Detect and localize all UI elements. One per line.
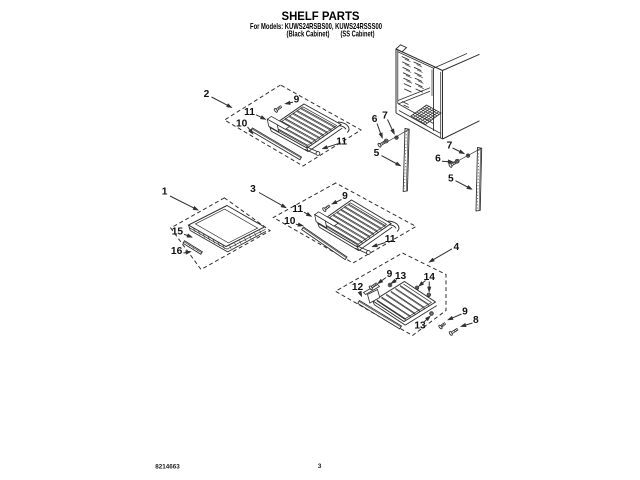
svg-text:(Black Cabinet): (Black Cabinet) — [287, 29, 330, 39]
svg-text:9: 9 — [462, 306, 468, 317]
svg-text:1: 1 — [162, 187, 168, 198]
svg-text:3: 3 — [250, 184, 256, 195]
svg-text:14: 14 — [424, 272, 436, 283]
svg-text:8214663: 8214663 — [155, 464, 180, 471]
svg-text:3: 3 — [318, 463, 322, 470]
svg-text:6: 6 — [435, 153, 441, 164]
svg-text:4: 4 — [453, 242, 459, 253]
svg-text:7: 7 — [447, 140, 453, 151]
svg-text:5: 5 — [374, 148, 380, 159]
svg-text:9: 9 — [342, 191, 348, 202]
svg-text:15: 15 — [172, 227, 184, 238]
svg-text:11: 11 — [244, 107, 255, 118]
svg-text:10: 10 — [236, 119, 248, 130]
svg-text:12: 12 — [352, 282, 364, 293]
svg-text:11: 11 — [292, 204, 303, 215]
svg-text:11: 11 — [385, 234, 396, 245]
svg-text:2: 2 — [204, 89, 210, 100]
svg-text:16: 16 — [171, 246, 183, 257]
svg-text:9: 9 — [294, 94, 300, 105]
svg-text:11: 11 — [336, 137, 347, 148]
svg-text:(SS Cabinet): (SS Cabinet) — [341, 29, 375, 39]
svg-text:10: 10 — [284, 216, 296, 227]
svg-text:5: 5 — [448, 173, 454, 184]
svg-text:8: 8 — [473, 315, 479, 326]
svg-text:9: 9 — [387, 269, 393, 280]
svg-text:7: 7 — [382, 110, 388, 121]
